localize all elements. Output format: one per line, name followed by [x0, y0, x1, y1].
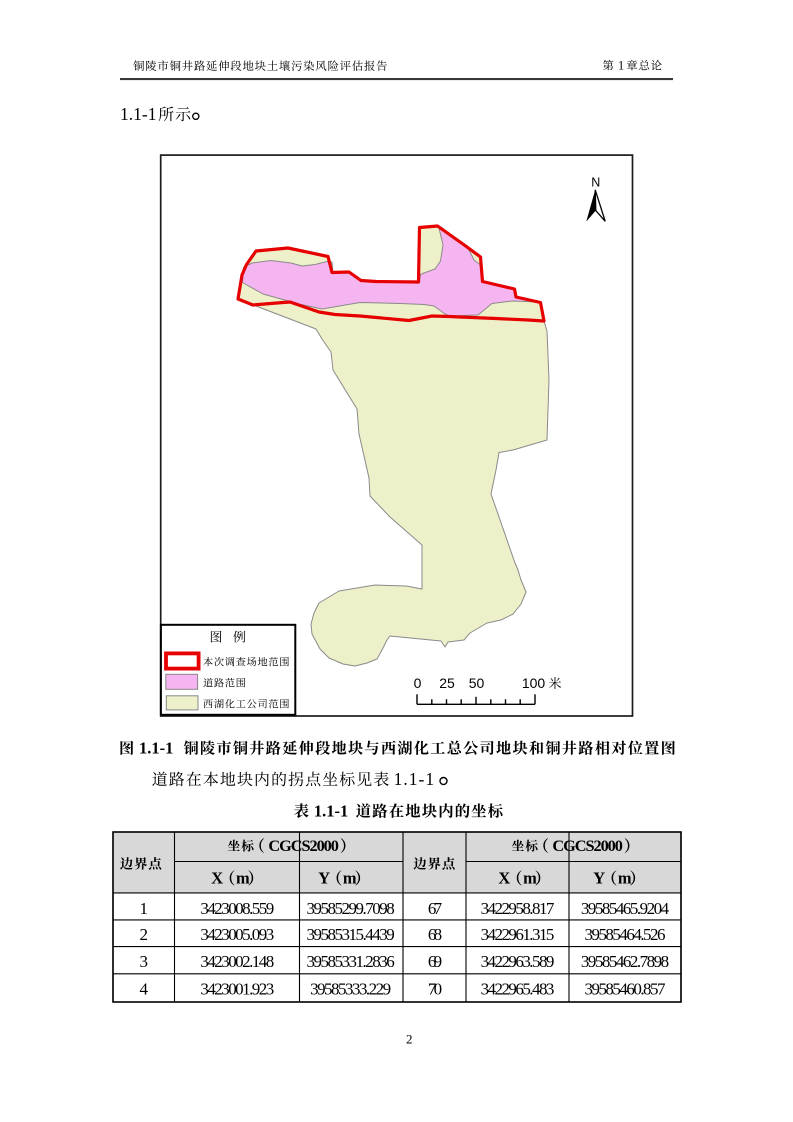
- svg-text:39585460.857: 39585460.857: [585, 979, 667, 998]
- svg-text:m: m: [236, 868, 250, 887]
- svg-text:X: X: [498, 868, 510, 887]
- svg-text:3422961.315: 3422961.315: [481, 925, 555, 944]
- svg-text:CGCS2000: CGCS2000: [268, 836, 339, 855]
- svg-text:25: 25: [439, 675, 455, 691]
- svg-text:39585464.526: 39585464.526: [585, 925, 666, 944]
- svg-text:39585462.7898: 39585462.7898: [581, 952, 669, 971]
- svg-text:39585299.7098: 39585299.7098: [306, 899, 394, 918]
- svg-text:1.1-1: 1.1-1: [314, 802, 348, 821]
- svg-text:39585465.9204: 39585465.9204: [581, 899, 670, 918]
- svg-text:68: 68: [428, 925, 442, 944]
- svg-text:67: 67: [428, 899, 443, 918]
- svg-text:2: 2: [140, 925, 149, 944]
- svg-text:m: m: [618, 868, 632, 887]
- svg-text:m: m: [343, 868, 357, 887]
- svg-text:70: 70: [428, 979, 442, 998]
- svg-text:1: 1: [618, 59, 624, 73]
- svg-text:1.1-1: 1.1-1: [139, 739, 173, 758]
- svg-text:4: 4: [140, 979, 149, 998]
- svg-text:3422958.817: 3422958.817: [481, 899, 555, 918]
- svg-text:0: 0: [414, 675, 422, 691]
- svg-text:1.1-1: 1.1-1: [394, 769, 435, 789]
- svg-text:100: 100: [522, 675, 546, 691]
- svg-text:N: N: [591, 176, 600, 190]
- svg-text:3422965.483: 3422965.483: [481, 979, 555, 998]
- svg-text:3423005.093: 3423005.093: [200, 925, 274, 944]
- svg-text:39585315.4439: 39585315.4439: [306, 925, 394, 944]
- svg-text:1.1-1: 1.1-1: [120, 104, 156, 124]
- svg-text:Y: Y: [318, 868, 330, 887]
- svg-text:3423002.148: 3423002.148: [200, 952, 274, 971]
- svg-text:1: 1: [140, 899, 149, 918]
- svg-text:3423008.559: 3423008.559: [200, 899, 274, 918]
- svg-text:Y: Y: [593, 868, 605, 887]
- svg-text:69: 69: [428, 952, 442, 971]
- svg-text:3: 3: [140, 952, 149, 971]
- svg-text:3423001.923: 3423001.923: [200, 979, 274, 998]
- svg-text:m: m: [523, 868, 537, 887]
- svg-text:X: X: [211, 868, 223, 887]
- svg-text:3422963.589: 3422963.589: [481, 952, 555, 971]
- svg-text:CGCS2000: CGCS2000: [552, 836, 623, 855]
- svg-text:39585333.229: 39585333.229: [310, 979, 391, 998]
- svg-text:2: 2: [406, 1031, 413, 1046]
- svg-text:50: 50: [469, 675, 485, 691]
- svg-text:39585331.2836: 39585331.2836: [306, 952, 394, 971]
